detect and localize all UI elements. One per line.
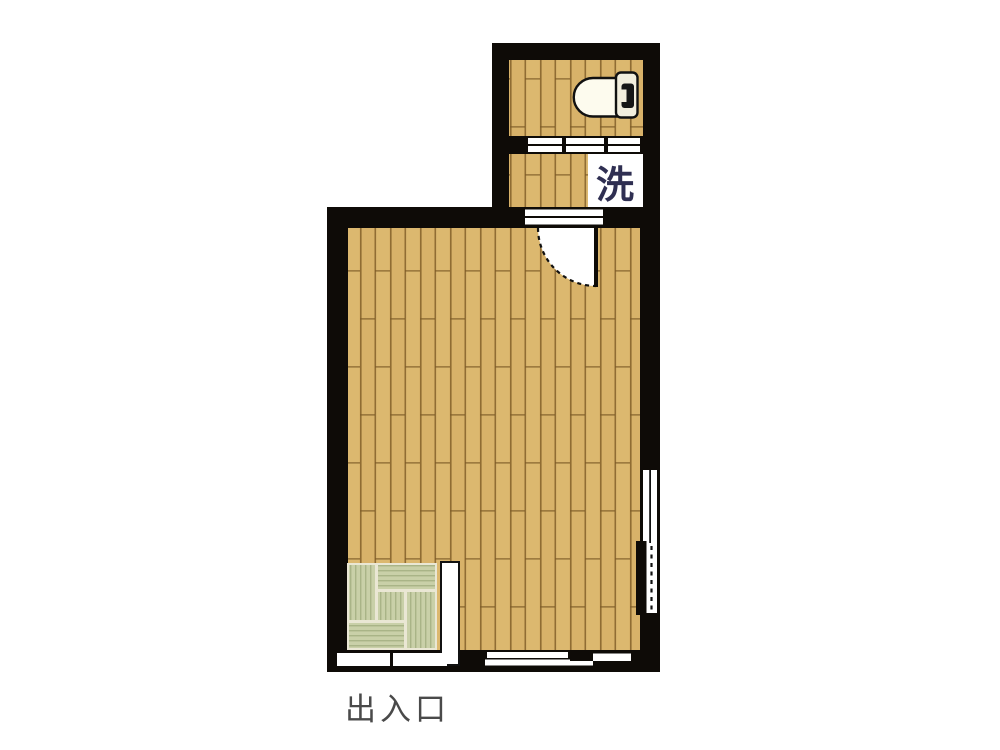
washing-machine-box: 洗 — [589, 156, 641, 207]
door-leaf — [594, 226, 598, 287]
window-lower — [647, 543, 658, 613]
wall-top-main — [327, 207, 660, 228]
window-upper-line — [649, 470, 651, 543]
tatami-mat — [378, 565, 435, 589]
tatami-corner — [347, 563, 437, 650]
wall-left-upper — [492, 43, 509, 228]
tatami-mat — [378, 592, 404, 620]
floorplan-drawing — [0, 0, 1000, 750]
tatami-mat — [349, 623, 404, 648]
wall-top-upper — [492, 43, 660, 60]
washroom-floor — [509, 154, 588, 207]
window-lower-wall-block — [636, 541, 647, 615]
wall-left-main — [327, 207, 348, 672]
toilet-tank-mark-notch — [619, 90, 627, 103]
floorplan-canvas: 洗 出入口 — [0, 0, 1000, 750]
tatami-mat — [349, 565, 375, 620]
closet-strip — [441, 562, 459, 665]
tatami-mat — [407, 592, 435, 648]
washing-machine-label: 洗 — [596, 154, 634, 209]
entrance-label: 出入口 — [345, 684, 450, 729]
toilet-bowl — [574, 78, 618, 117]
main-block — [327, 207, 660, 672]
wall-right-upper — [643, 43, 660, 228]
